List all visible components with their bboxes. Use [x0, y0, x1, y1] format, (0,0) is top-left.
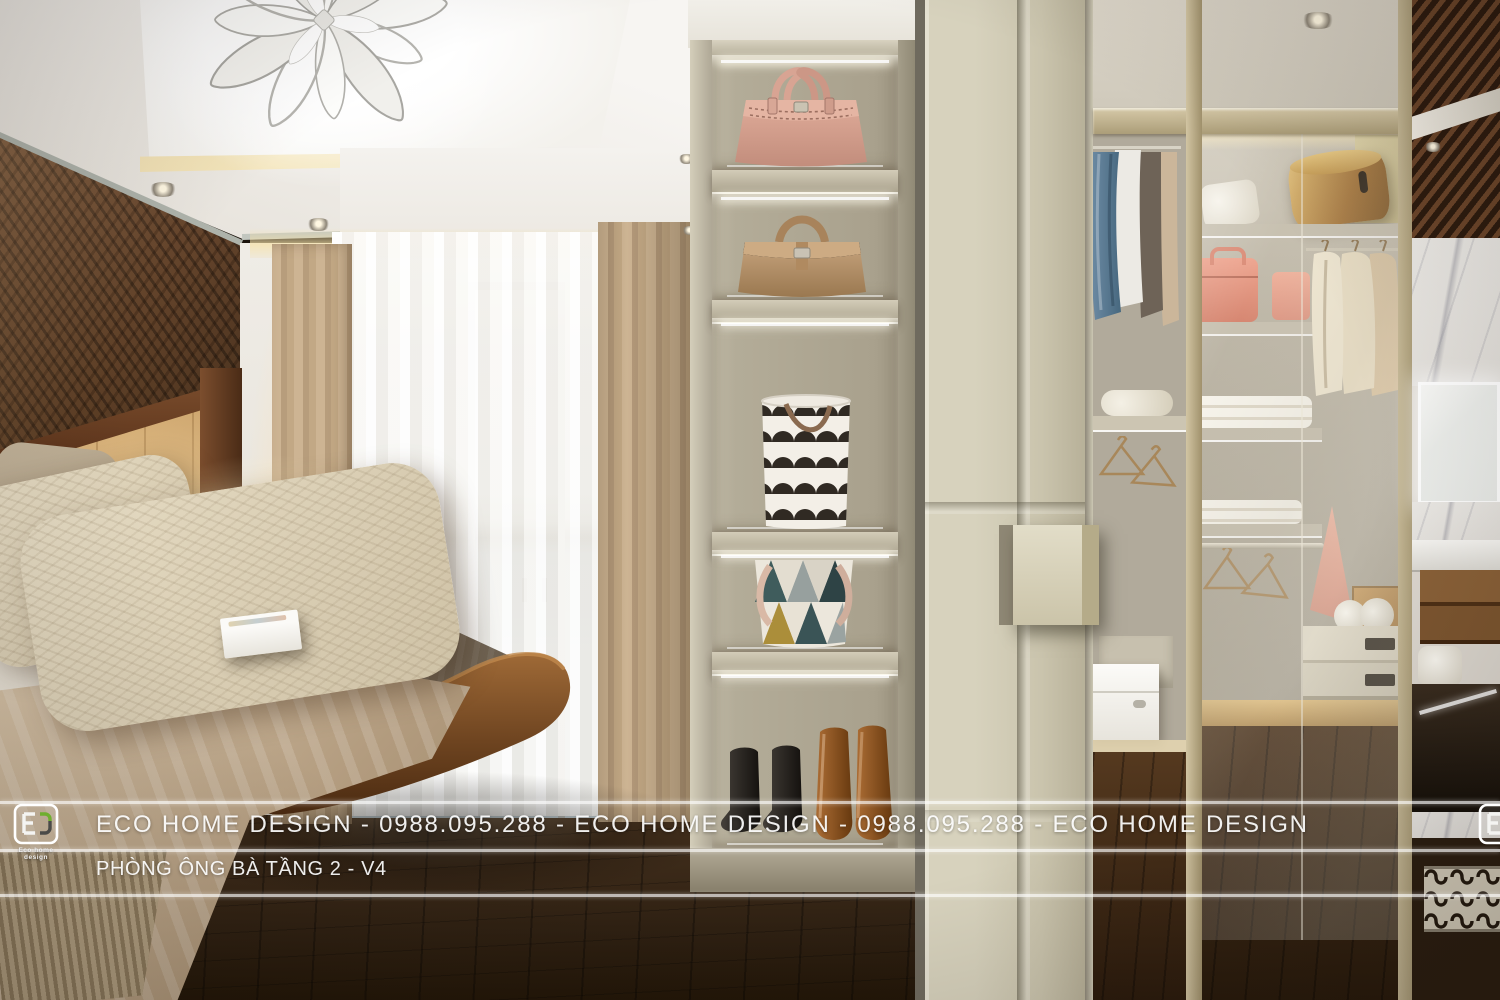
render-caption: PHÒNG ÔNG BÀ TẦNG 2 - V4 [96, 858, 387, 881]
logo-label: Eco home design [12, 847, 60, 861]
interior-render-scene: ECO HOME DESIGN - 0988.095.288 - ECO HOM… [0, 0, 1500, 1000]
watermark-banner: ECO HOME DESIGN - 0988.095.288 - ECO HOM… [96, 811, 1309, 839]
watermark-line-bottom [0, 894, 1500, 897]
watermark-line-top [0, 801, 1500, 804]
eco-home-design-logo: Eco home design [12, 802, 64, 864]
logo-mark-icon [12, 802, 60, 848]
watermark-line-middle [0, 849, 1500, 852]
logo-mark-icon [1477, 802, 1500, 848]
eco-home-design-logo-partial [1477, 802, 1500, 864]
